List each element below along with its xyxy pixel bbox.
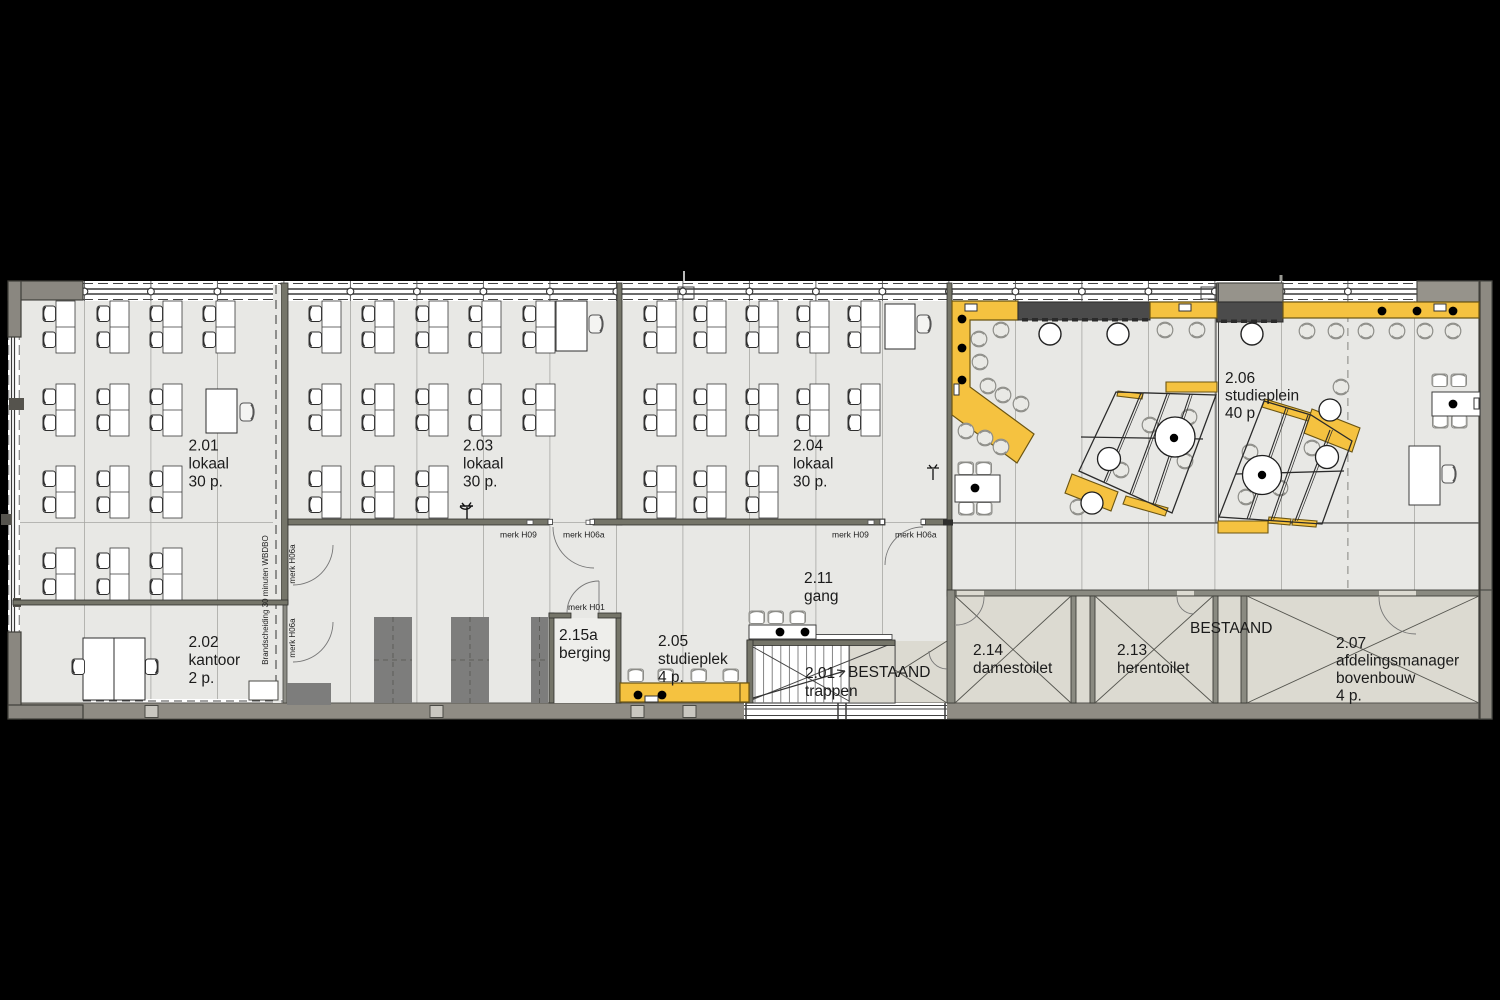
svg-text:4 p.: 4 p. bbox=[658, 669, 684, 686]
svg-text:merk H01: merk H01 bbox=[568, 602, 605, 612]
svg-text:studieplek: studieplek bbox=[658, 651, 728, 668]
svg-text:merk H06a: merk H06a bbox=[288, 618, 297, 658]
svg-text:4 p.: 4 p. bbox=[1336, 688, 1362, 705]
svg-text:herentoilet: herentoilet bbox=[1117, 660, 1190, 677]
svg-text:30 p.: 30 p. bbox=[189, 474, 223, 491]
svg-text:bovenbouw: bovenbouw bbox=[1336, 670, 1416, 687]
svg-text:merk H09: merk H09 bbox=[500, 530, 537, 540]
svg-text:lokaal: lokaal bbox=[793, 456, 834, 473]
svg-text:2.07: 2.07 bbox=[1336, 635, 1366, 652]
svg-text:2.04: 2.04 bbox=[793, 438, 824, 455]
svg-text:trappen: trappen bbox=[805, 683, 858, 700]
svg-text:2.14: 2.14 bbox=[973, 642, 1004, 659]
svg-text:kantoor: kantoor bbox=[189, 652, 241, 669]
svg-text:2.01: 2.01 bbox=[189, 438, 219, 455]
svg-text:lokaal: lokaal bbox=[463, 456, 504, 473]
svg-text:2.05: 2.05 bbox=[658, 633, 688, 650]
svg-text:merk H06a: merk H06a bbox=[563, 530, 605, 540]
svg-text:2.11: 2.11 bbox=[804, 570, 833, 587]
svg-text:merk H06a: merk H06a bbox=[288, 544, 297, 584]
svg-text:2.13: 2.13 bbox=[1117, 642, 1147, 659]
svg-text:2.06: 2.06 bbox=[1225, 370, 1255, 387]
svg-text:afdelingsmanager: afdelingsmanager bbox=[1336, 653, 1459, 670]
svg-text:gang: gang bbox=[804, 588, 838, 605]
svg-text:studieplein: studieplein bbox=[1225, 388, 1299, 405]
svg-text:2.02: 2.02 bbox=[189, 634, 219, 651]
svg-text:30 p.: 30 p. bbox=[793, 474, 827, 491]
svg-text:lokaal: lokaal bbox=[189, 456, 230, 473]
svg-text:BESTAAND: BESTAAND bbox=[1190, 620, 1272, 637]
svg-text:berging: berging bbox=[559, 645, 611, 662]
svg-text:damestoilet: damestoilet bbox=[973, 660, 1053, 677]
svg-text:40 p: 40 p bbox=[1225, 405, 1255, 422]
svg-text:merk H09: merk H09 bbox=[832, 530, 869, 540]
svg-text:2.03: 2.03 bbox=[463, 438, 493, 455]
svg-text:2.01: 2.01 bbox=[805, 665, 835, 682]
svg-text:merk H06a: merk H06a bbox=[895, 530, 937, 540]
svg-text:2 p.: 2 p. bbox=[189, 670, 215, 687]
svg-text:BESTAAND: BESTAAND bbox=[848, 664, 930, 681]
svg-text:Brandscheiding 30 minuten WBDB: Brandscheiding 30 minuten WBDBO bbox=[261, 535, 270, 664]
svg-text:2.15a: 2.15a bbox=[559, 627, 598, 644]
svg-text:30 p.: 30 p. bbox=[463, 474, 497, 491]
